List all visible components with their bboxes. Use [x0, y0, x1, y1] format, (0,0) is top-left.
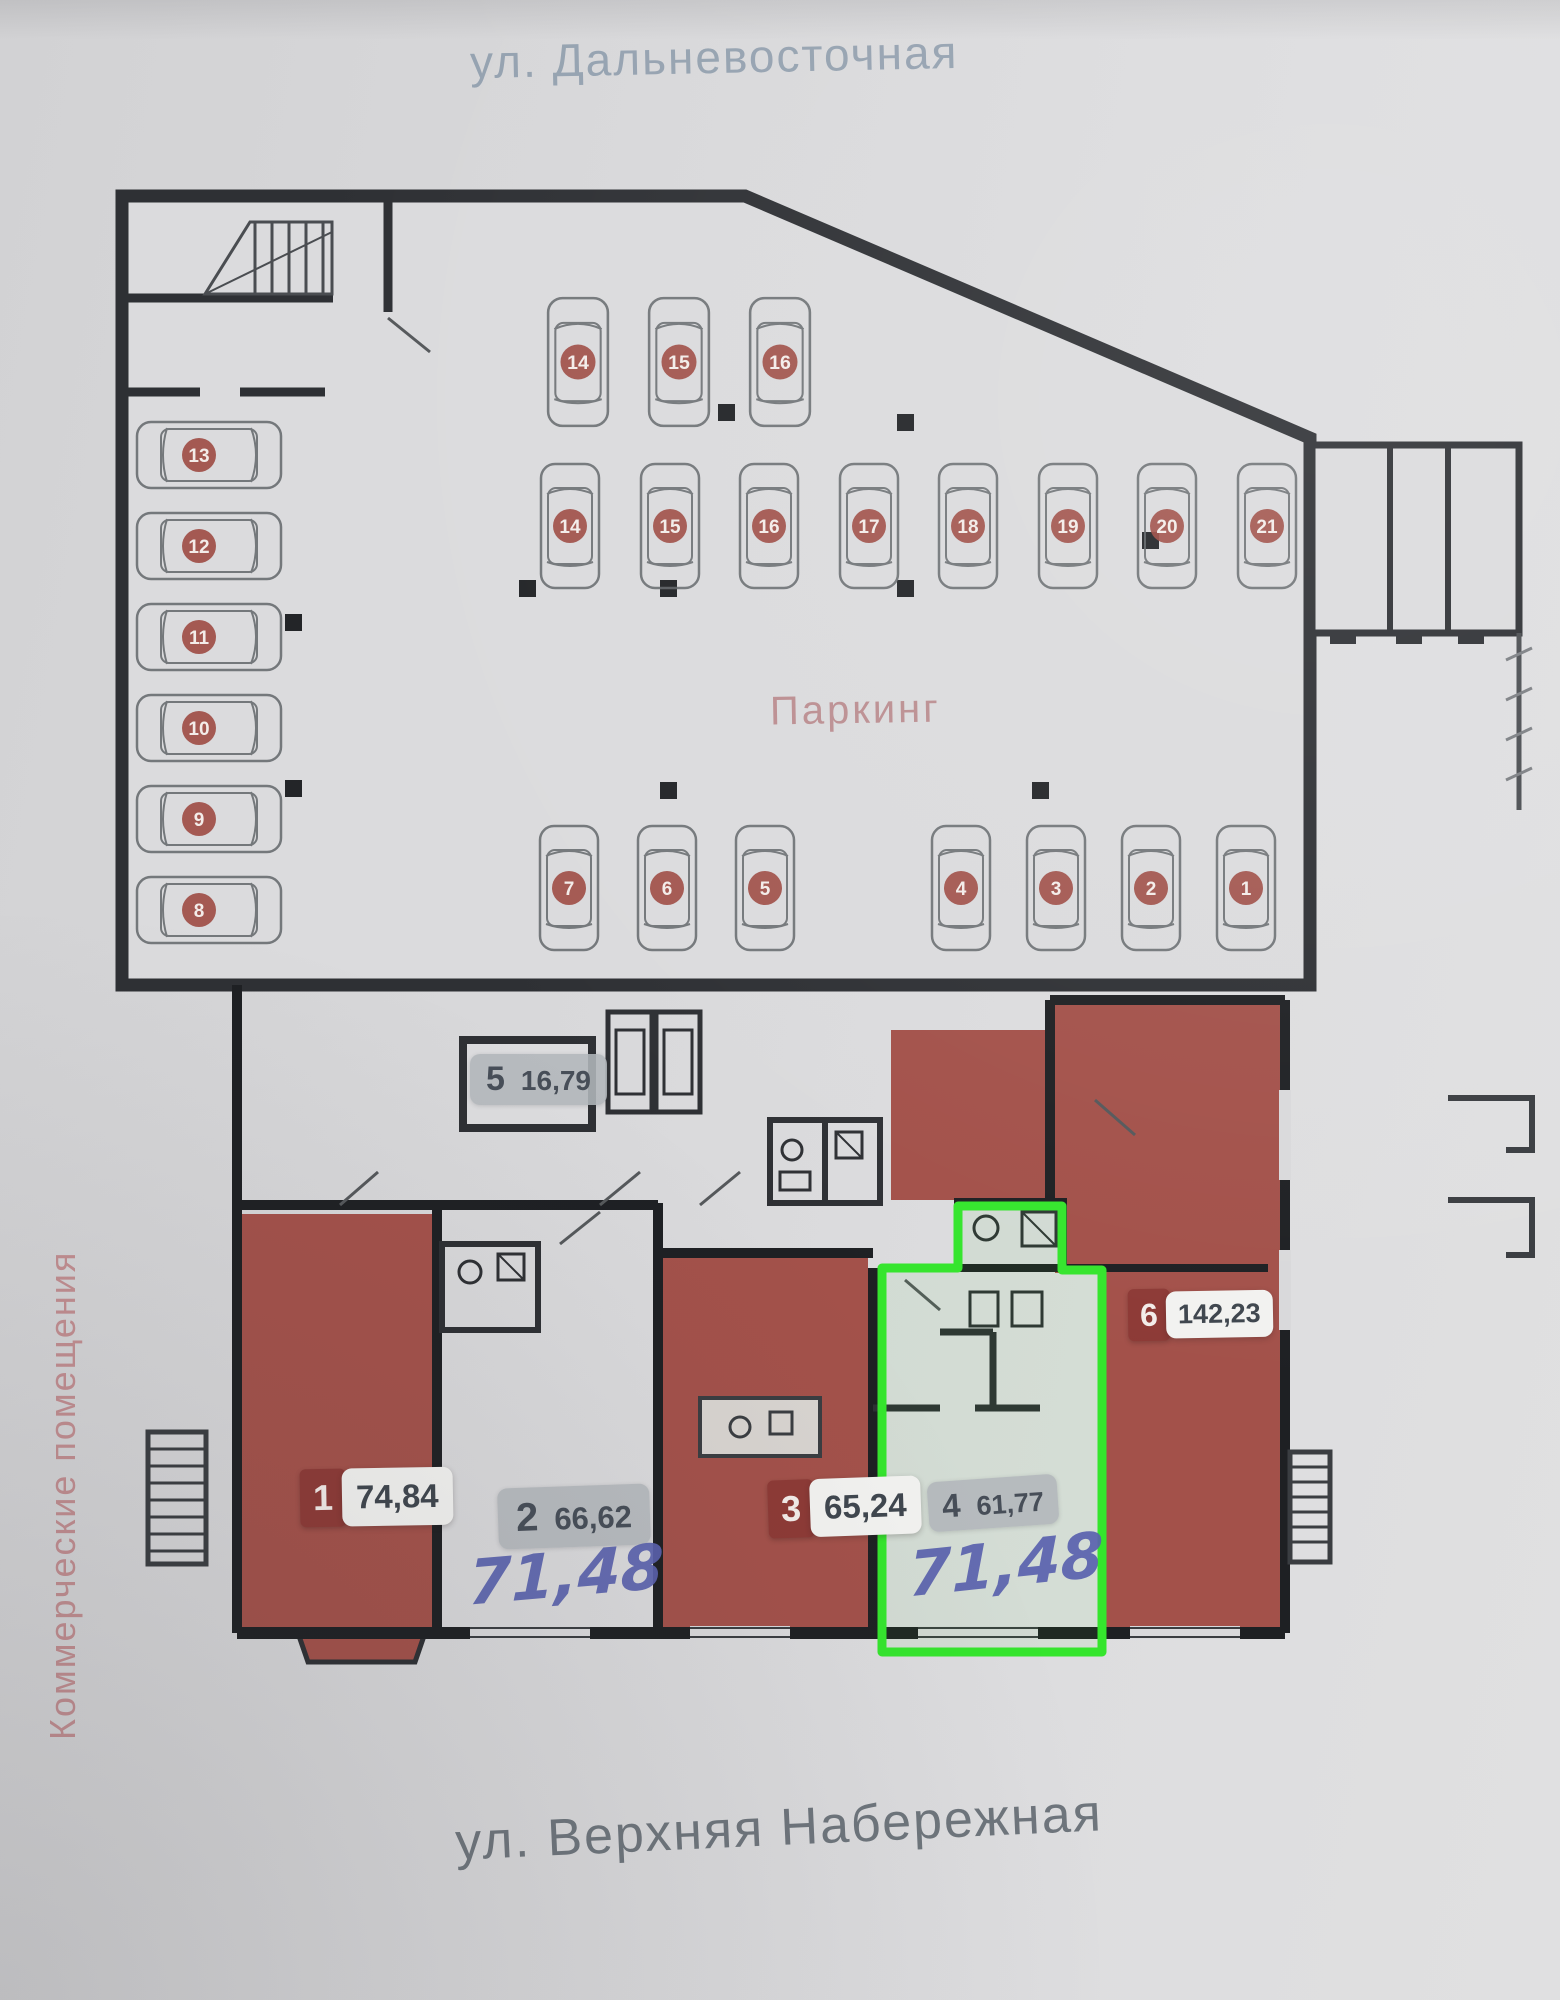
unit4-number: 4 — [941, 1486, 962, 1525]
unit4-area: 61,77 — [975, 1486, 1045, 1522]
floor-plan-photo: 13 12 11 10 — [0, 0, 1560, 2000]
unit1-badge: 1 74,84 — [300, 1467, 454, 1528]
commercial-premises-label: Коммерческие помещения — [42, 1020, 84, 1740]
unit6-badge: 6 142,23 — [1128, 1287, 1273, 1342]
unit3-area: 65,24 — [809, 1475, 922, 1537]
unit5-area: 16,79 — [521, 1065, 591, 1097]
unit3-badge: 3 65,24 — [767, 1475, 922, 1538]
street-label-bottom: ул. Верхняя Набережная — [454, 1783, 1104, 1872]
unit2-number: 2 — [515, 1495, 539, 1541]
unit2-handwritten-area: 71,48 — [468, 1529, 665, 1619]
unit1-area: 74,84 — [341, 1467, 453, 1527]
unit5-badge: 5 16,79 — [470, 1054, 607, 1105]
unit3-number: 3 — [767, 1479, 815, 1539]
street-label-top: ул. Дальневосточная — [469, 25, 958, 89]
parking-area-label: Паркинг — [770, 687, 942, 735]
unit5-number: 5 — [486, 1060, 505, 1099]
unit6-number: 6 — [1128, 1289, 1171, 1342]
unit6-area: 142,23 — [1166, 1289, 1273, 1338]
unit1-number: 1 — [300, 1469, 347, 1528]
unit2-area: 66,62 — [554, 1499, 633, 1538]
text-layer: ул. Дальневосточная Паркинг Коммерческие… — [0, 0, 1560, 2000]
